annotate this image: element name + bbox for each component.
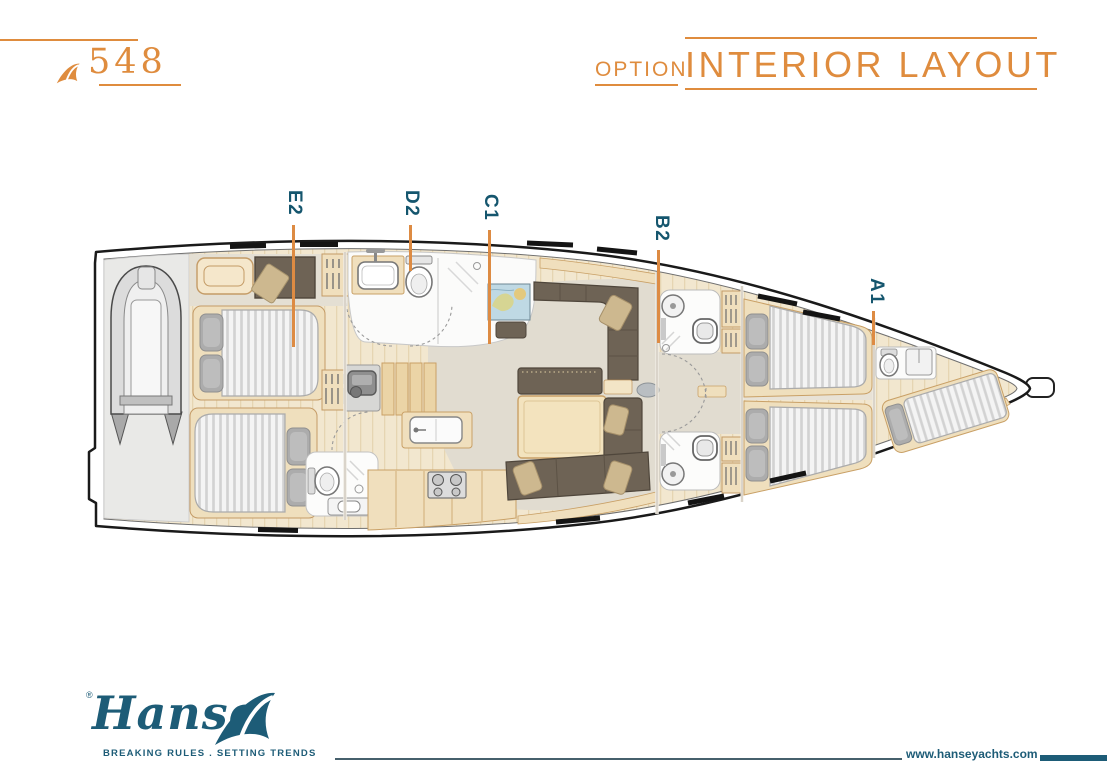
leader-line-c1 — [488, 230, 491, 344]
sink — [338, 501, 360, 512]
leader-line-b2 — [657, 250, 660, 343]
footer-rule-thin — [335, 758, 902, 760]
stair-step — [382, 363, 394, 415]
wave-icon — [213, 688, 313, 750]
bed-mattress — [195, 414, 285, 512]
aft-bathroom — [306, 452, 378, 516]
cabin-label-e2: E2 — [283, 190, 305, 216]
tender-garage — [104, 254, 189, 522]
leader-line-a1 — [872, 311, 875, 345]
bed-mattress — [222, 310, 318, 396]
cabin-label-b2: B2 — [650, 215, 672, 242]
brand-tagline: BREAKING RULES . SETTING TRENDS — [103, 748, 317, 759]
stair-step — [396, 363, 408, 415]
website-link[interactable]: www.hanseyachts.com — [906, 747, 1038, 761]
stair-step — [424, 363, 436, 415]
footer-rule-thick — [1040, 755, 1107, 761]
yacht-floor-plan — [0, 0, 1107, 767]
salon-table — [518, 396, 606, 458]
leader-line-e2 — [292, 225, 295, 347]
cabin-label-d2: D2 — [400, 190, 422, 217]
leader-line-d2 — [409, 225, 412, 271]
companionway — [344, 363, 436, 415]
cabin-label-c1: C1 — [479, 194, 501, 221]
stair-step — [410, 363, 422, 415]
cabin-label-a1: A1 — [865, 278, 887, 305]
